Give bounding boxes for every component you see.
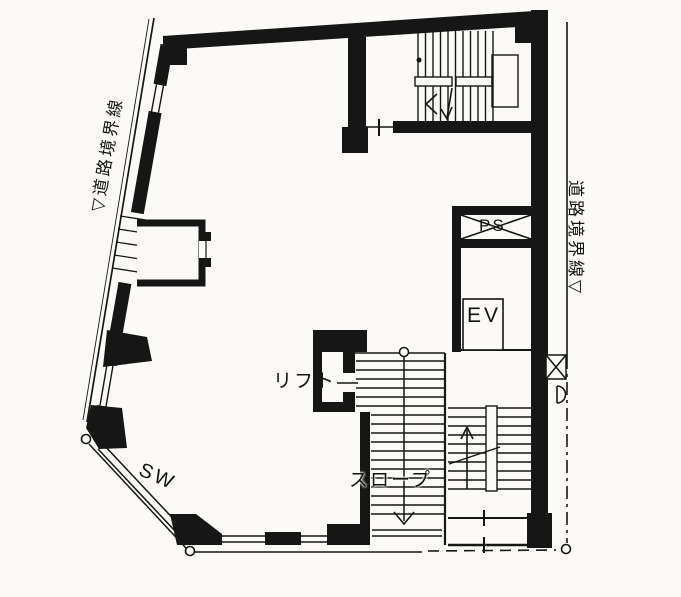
elevator-label: EV <box>467 305 501 326</box>
right-wall-duct-box <box>546 355 566 403</box>
chamfer-boundary-line <box>89 444 186 548</box>
road-boundary-label-right: 道路境界線▽ <box>567 180 584 296</box>
floor-plan-canvas: ▽道路境界線 道路境界線▽ リフト スロープ PS EV SW <box>0 0 681 597</box>
show-window-wall <box>98 444 222 545</box>
bottom-wall <box>222 524 442 545</box>
upper-staircase <box>342 31 531 153</box>
ramp <box>355 348 445 546</box>
plan-linework <box>0 0 681 597</box>
right-wall <box>527 10 552 548</box>
bottom-road-boundary-line <box>195 550 556 552</box>
vestibule <box>448 510 529 553</box>
slope-label: スロープ <box>349 471 432 490</box>
pipe-space-label: PS <box>479 217 506 234</box>
lift-label: リフト <box>273 372 336 391</box>
lower-staircase <box>448 406 531 491</box>
entry-porch <box>137 220 211 286</box>
